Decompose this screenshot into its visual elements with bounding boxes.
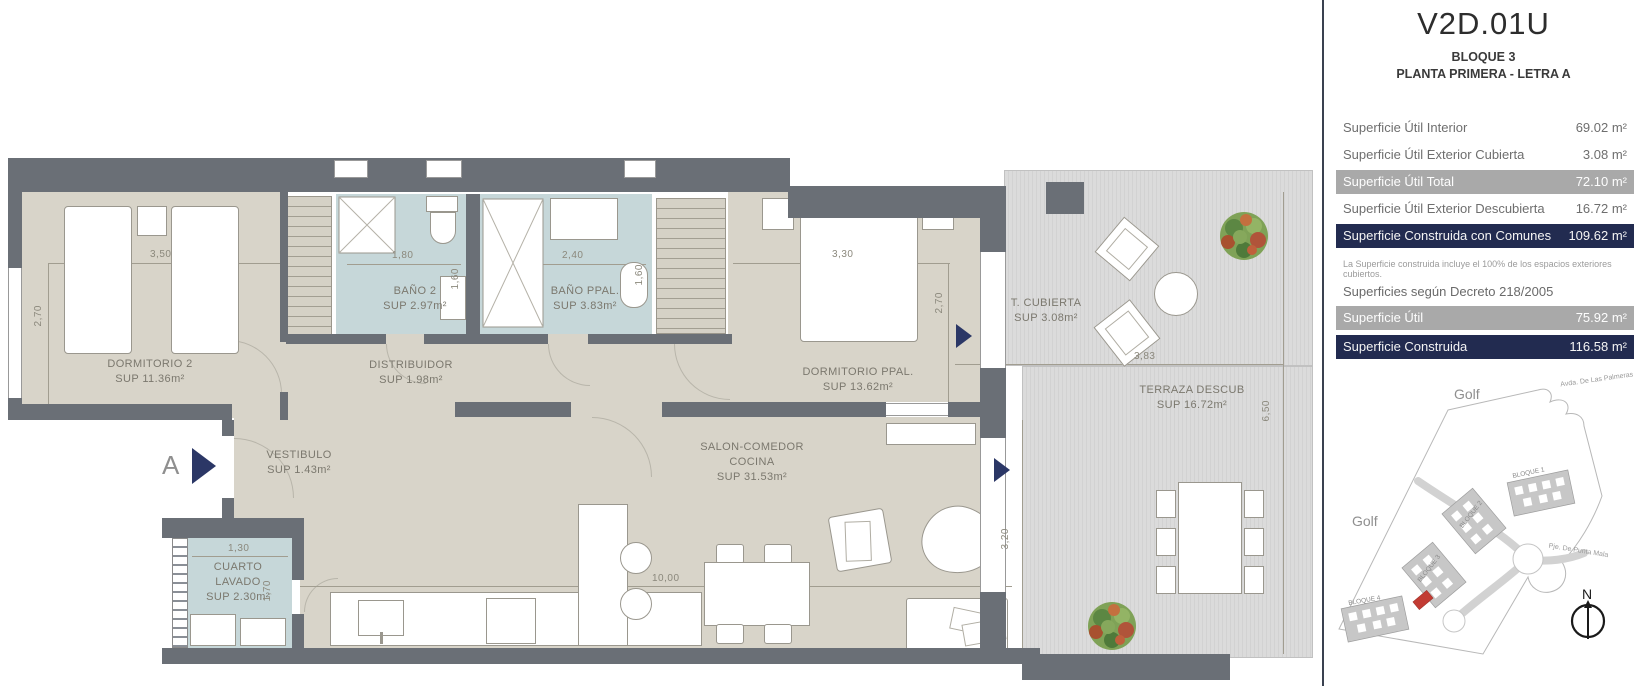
area-label: Superficie Útil Exterior Descubierta [1343,201,1545,216]
wall [280,192,288,342]
plant-icon [1214,206,1274,266]
wall [455,402,571,417]
dim-3-50: 3,50 [150,249,171,260]
outdoor-chair [1244,528,1264,556]
area-value: 116.58 m² [1569,335,1627,359]
room-label-banoppal: BAÑO PPAL. SUP 3.83m² [510,284,660,314]
area-value: 16.72 m² [1576,197,1627,221]
floorplan-sheet: { "colors": {"accent_navy":"#222b50","ba… [0,0,1643,692]
shower-icon [338,196,396,254]
room-label-vestibulo: VESTIBULO SUP 1.43m² [224,448,374,478]
room-name: SALON-COMEDOR [647,440,857,455]
wall [980,592,1006,648]
dim-3-20: 3,20 [1000,528,1011,549]
dim-line [192,556,288,557]
entrance-letter: A [162,450,179,481]
dim-1-70: 1,70 [262,580,273,601]
area-value: 3.08 m² [1583,143,1627,167]
hob-icon [486,598,536,644]
vanity [550,198,618,240]
bed-double [800,198,918,342]
room-sup: SUP 31.53m² [647,470,857,485]
room-sup: SUP 2.30m² [163,590,313,605]
outdoor-chair [1156,528,1176,556]
room-name: CUARTO [163,560,313,575]
room-name: COCINA [647,455,857,470]
washer-icon [190,614,236,646]
area-row-util-total: Superficie Útil Total 72.10 m² [1336,170,1634,194]
wall [8,192,22,268]
chair [716,624,744,644]
area-label: Superficie Útil [1343,310,1423,325]
area-value: 109.62 m² [1568,224,1627,248]
nightstand [137,206,167,236]
wall [662,402,790,417]
kitchen-tap [380,632,383,644]
decree-row-util: Superficie Útil 75.92 m² [1336,306,1634,330]
chair [716,544,744,564]
building-bloque2 [1442,488,1506,554]
wall [8,404,232,420]
wall [162,648,1040,664]
wall [588,334,732,344]
armchair [828,508,893,573]
construction-note: La Superficie construida incluye el 100%… [1343,259,1635,279]
label-golf-top: Golf [1454,386,1480,402]
wall [222,498,234,518]
room-sup: SUP 3.08m² [971,311,1121,326]
stool [620,588,652,620]
room-name: DORMITORIO 2 [75,357,225,372]
area-value: 69.02 m² [1576,116,1627,140]
entrance-arrow-icon [192,448,216,484]
area-value: 75.92 m² [1576,306,1627,330]
room-name: LAVADO [163,575,313,590]
dim-2-40: 2,40 [562,250,583,261]
dim-10-00: 10,00 [652,573,680,584]
unit-title: V2D.01U [1324,6,1643,42]
floor-subtitle: PLANTA PRIMERA - LETRA A [1324,67,1643,81]
label-golf-left: Golf [1352,513,1378,529]
room-label-terraza: TERRAZA DESCUB SUP 16.72m² [1117,383,1267,413]
block-subtitle: BLOQUE 3 [1324,50,1643,64]
dim-6-50: 6,50 [1261,400,1272,421]
area-row-util-interior: Superficie Útil Interior 69.02 m² [1336,116,1634,140]
toilet-icon [426,196,458,212]
room-sup: SUP 16.72m² [1117,398,1267,413]
wall [286,334,386,344]
north-letter: N [1582,586,1592,602]
info-panel: V2D.01U BLOQUE 3 PLANTA PRIMERA - LETRA … [1324,0,1643,692]
wall [8,158,790,192]
room-label-tcubierta: T. CUBIERTA SUP 3.08m² [971,296,1121,326]
wall [788,186,1006,218]
kitchen-island [578,504,628,646]
building-bloque3 [1402,542,1466,608]
area-label: Superficie Construida [1343,339,1467,354]
tv-cabinet [886,423,976,445]
wall [1022,654,1230,680]
terrace-access-arrow-icon [994,458,1010,482]
wall [222,420,234,436]
area-value: 72.10 m² [1576,170,1627,194]
room-label-salon: SALON-COMEDOR COCINA SUP 31.53m² [647,440,857,485]
outdoor-chair [1244,566,1264,594]
wardrobe-dormitorio2 [286,196,332,336]
wall [280,392,288,420]
dim-1-80: 1,80 [392,250,413,261]
room-sup: SUP 2.97m² [340,299,490,314]
room-label-lavado: CUARTO LAVADO SUP 2.30m² [163,560,313,605]
toilet-icon [430,212,456,244]
room-label-distribuidor: DISTRIBUIDOR SUP 1.98m² [336,358,486,388]
chair [764,544,792,564]
road-circle [1513,544,1543,574]
round-table [1154,272,1198,316]
wall [980,368,1006,438]
dim-line [948,263,949,402]
label-avda-palmeras: Avda. De Las Palmeras [1560,371,1634,388]
wall [790,402,886,417]
outdoor-chair [1156,490,1176,518]
window-top-1 [334,160,368,178]
dim-2-70-right: 2,70 [934,292,945,313]
dim-line [300,586,1012,587]
dim-1-30: 1,30 [228,543,249,554]
dim-line [48,263,49,404]
window-top-3 [624,160,656,178]
road-circle-small [1443,610,1465,632]
window-top-2 [426,160,462,178]
room-label-bano2: BAÑO 2 SUP 2.97m² [340,284,490,314]
wall [466,194,480,336]
room-sup: SUP 13.62m² [783,380,933,395]
kitchen-sink-icon [358,600,404,636]
dim-line [1283,192,1284,654]
area-row-util-ext-cubierta: Superficie Útil Exterior Cubierta 3.08 m… [1336,143,1634,167]
area-label: Superficie Útil Interior [1343,120,1467,135]
room-name: VESTIBULO [224,448,374,463]
decree-row-construida: Superficie Construida 116.58 m² [1336,335,1634,359]
dim-3-30: 3,30 [832,249,853,260]
area-label: Superficie Útil Exterior Cubierta [1343,147,1524,162]
room-sup: SUP 11.36m² [75,372,225,387]
site-map: BLOQUE 1 BLOQUE 2 BLOQUE 3 BLOQUE 4 Golf… [1322,363,1643,692]
room-name: BAÑO PPAL. [510,284,660,299]
room-name: TERRAZA DESCUB [1117,383,1267,398]
outdoor-dining-table [1178,482,1242,594]
dim-line [347,264,461,265]
room-label-dormitorio2: DORMITORIO 2 SUP 11.36m² [75,357,225,387]
outdoor-chair [1244,490,1264,518]
plant-icon [1082,596,1142,656]
armchair-seat [845,521,872,562]
bed-single [64,206,132,354]
chair [764,624,792,644]
stool [620,542,652,574]
dim-2-70-left: 2,70 [33,305,44,326]
area-row-construida-comunes: Superficie Construida con Comunes 109.62… [1336,224,1634,248]
wall [162,518,304,538]
room-name: T. CUBIERTA [971,296,1121,311]
decree-heading: Superficies según Decreto 218/2005 [1343,284,1635,299]
dim-1-60-a: 1,60 [450,268,461,289]
outdoor-chair [1156,566,1176,594]
dim-3-83: 3,83 [1134,351,1155,362]
dim-1-60-b: 1,60 [634,264,645,285]
room-sup: SUP 1.98m² [336,373,486,388]
dim-line [1022,420,1023,654]
room-label-dormppal: DORMITORIO PPAL. SUP 13.62m² [783,365,933,395]
window-dormppal-south [886,403,948,416]
window-dormitorio2 [8,268,22,398]
area-label: Superficie Construida con Comunes [1343,228,1551,243]
floor-plan: A DORMITORIO 2 SUP 11.36m² DISTRIBUIDOR … [0,0,1322,692]
room-sup: SUP 3.83m² [510,299,660,314]
area-label: Superficie Útil Total [1343,174,1454,189]
wall [424,334,548,344]
north-compass-icon: N [1572,586,1604,639]
area-row-util-ext-descubierta: Superficie Útil Exterior Descubierta 16.… [1336,197,1634,221]
wall [292,614,304,648]
dryer-icon [240,618,286,646]
lounge-cushion [1106,228,1148,270]
bed-single [171,206,239,354]
room-name: DORMITORIO PPAL. [783,365,933,380]
room-name: BAÑO 2 [340,284,490,299]
wardrobe-dormppal [656,198,726,334]
terrace-pillar [1046,182,1084,214]
room-sup: SUP 1.43m² [224,463,374,478]
room-name: DISTRIBUIDOR [336,358,486,373]
terrace-access-arrow-icon [956,324,972,348]
dining-table [704,562,810,626]
wall [980,186,1006,252]
